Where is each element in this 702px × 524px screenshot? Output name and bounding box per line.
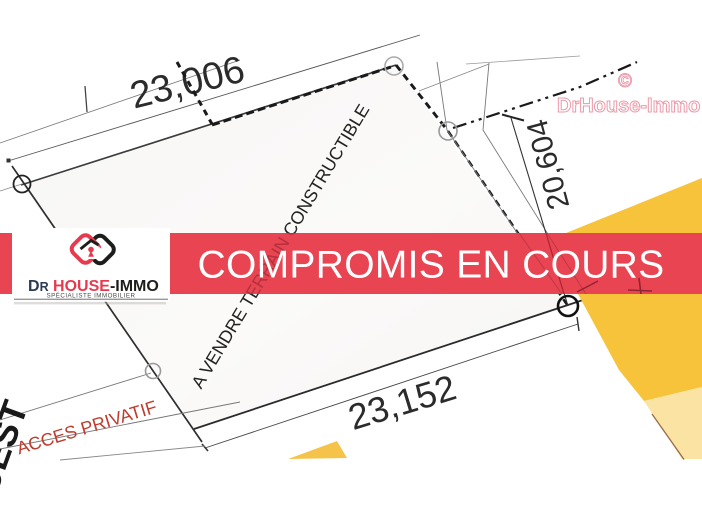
svg-text:©: © [618,71,632,92]
svg-text:DrHouse-Immo: DrHouse-Immo [557,95,700,117]
svg-text:COMPROMIS EN COURS: COMPROMIS EN COURS [198,244,665,287]
svg-text:SPÉCIALISTE IMMOBILIER: SPÉCIALISTE IMMOBILIER [46,293,135,300]
